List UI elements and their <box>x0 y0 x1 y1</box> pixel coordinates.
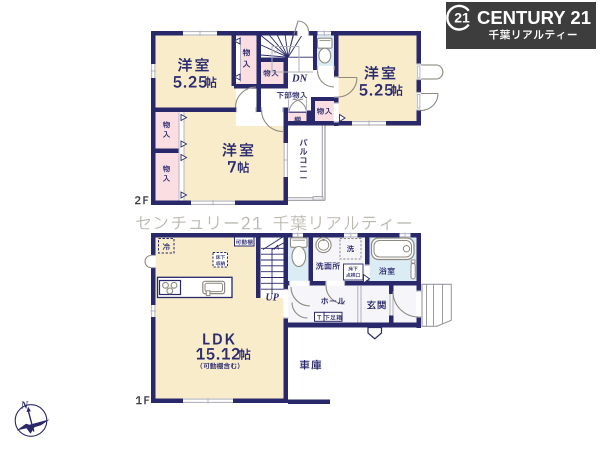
svg-text:N: N <box>20 401 29 412</box>
svg-text:DN: DN <box>291 73 308 84</box>
svg-text:UP: UP <box>266 293 280 304</box>
svg-text:CENTURY 21: CENTURY 21 <box>477 7 591 28</box>
svg-text:21: 21 <box>454 9 470 25</box>
